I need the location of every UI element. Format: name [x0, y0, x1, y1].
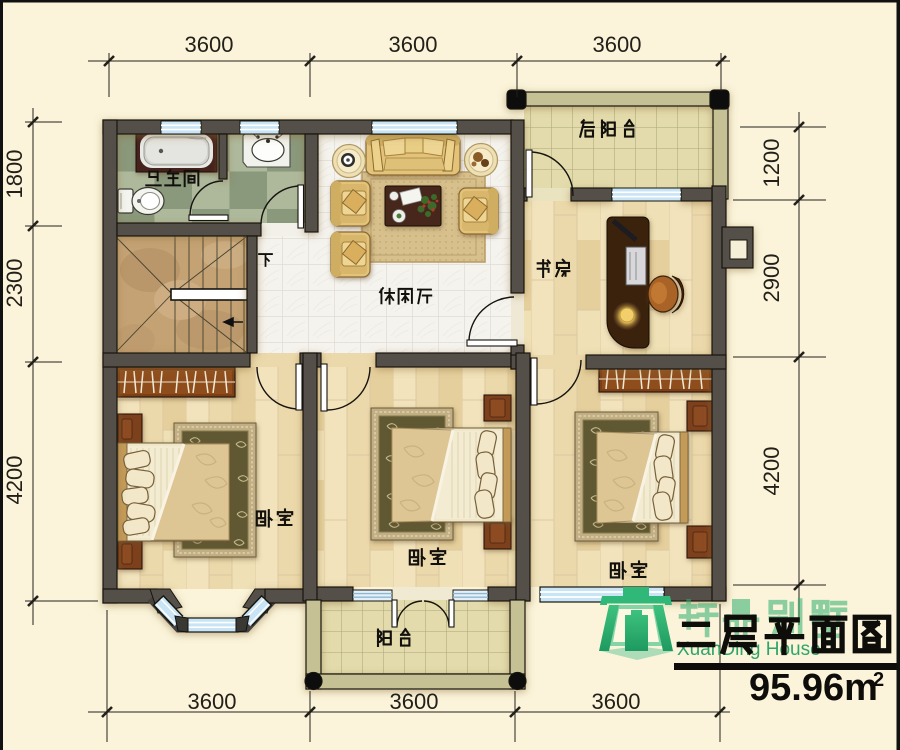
svg-text:3600: 3600 [592, 689, 641, 714]
svg-text:3600: 3600 [593, 32, 642, 57]
svg-text:4200: 4200 [759, 447, 784, 496]
svg-text:3600: 3600 [390, 689, 439, 714]
svg-text:4200: 4200 [2, 456, 27, 505]
svg-text:3600: 3600 [389, 32, 438, 57]
svg-text:3600: 3600 [188, 689, 237, 714]
svg-text:2: 2 [873, 669, 884, 691]
svg-text:1800: 1800 [2, 150, 27, 199]
svg-text:1200: 1200 [759, 139, 784, 188]
svg-text:95.96m: 95.96m [749, 667, 878, 709]
svg-text:3600: 3600 [185, 32, 234, 57]
svg-text:2900: 2900 [759, 254, 784, 303]
svg-text:2300: 2300 [2, 259, 27, 308]
